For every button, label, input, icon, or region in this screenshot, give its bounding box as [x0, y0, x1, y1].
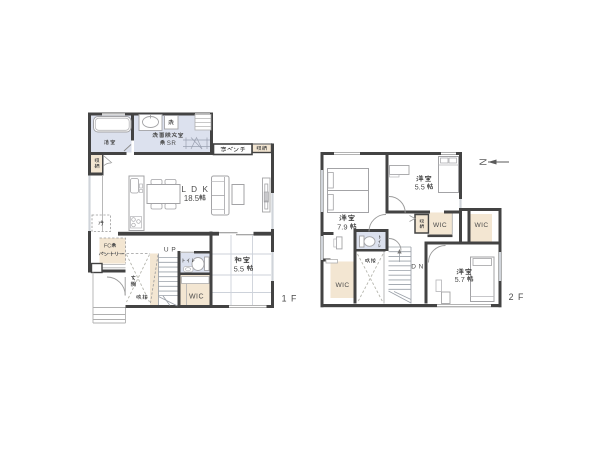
svg-text:5.5: 5.5	[234, 264, 244, 273]
svg-text:WIC: WIC	[335, 282, 349, 289]
svg-text:WIC: WIC	[433, 222, 447, 229]
svg-text:WIC: WIC	[189, 294, 204, 301]
svg-text:D N: D N	[411, 264, 423, 271]
svg-text:SR: SR	[167, 140, 177, 147]
svg-text:1 F: 1 F	[282, 294, 298, 304]
svg-text:2 F: 2 F	[509, 292, 525, 302]
svg-text:WIC: WIC	[474, 222, 488, 229]
svg-text:18.5: 18.5	[184, 194, 200, 203]
svg-text:L D K: L D K	[181, 185, 209, 194]
svg-text:5.7: 5.7	[455, 275, 465, 284]
svg-text:7.9: 7.9	[337, 223, 347, 232]
svg-text:5.5: 5.5	[415, 183, 425, 192]
svg-text:N: N	[477, 158, 488, 165]
svg-text:U P: U P	[164, 247, 176, 254]
svg-text:FC: FC	[104, 243, 111, 249]
